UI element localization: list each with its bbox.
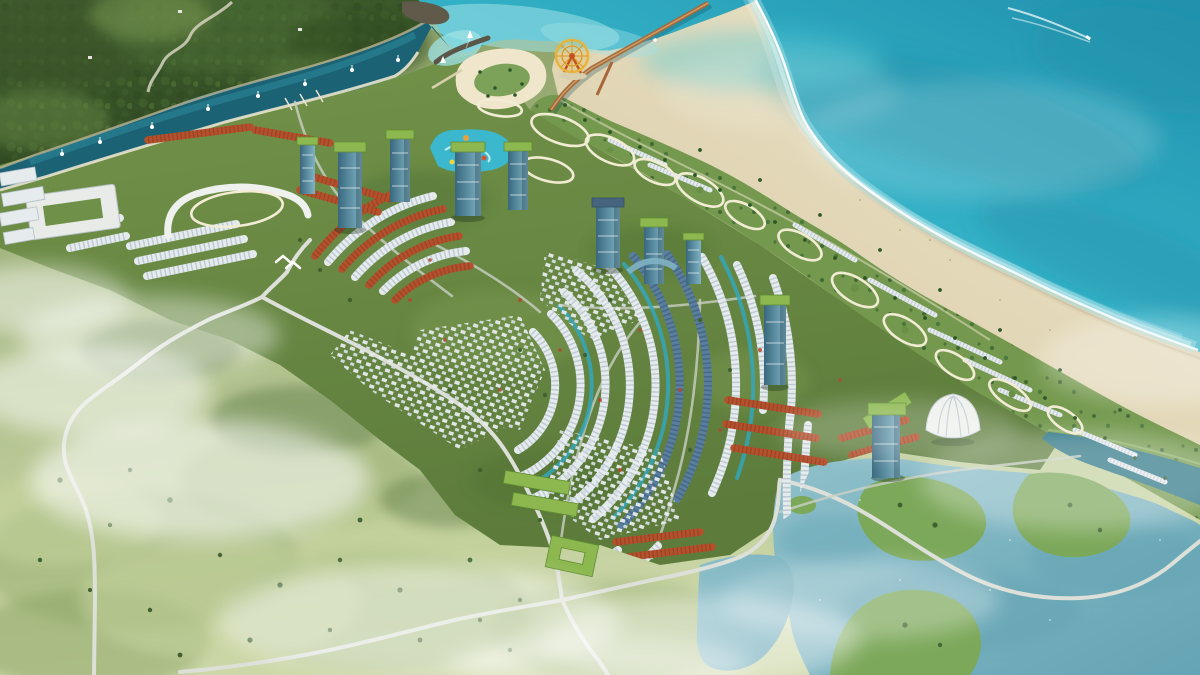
aerial-render <box>0 0 1200 675</box>
masterplan-scene <box>0 0 1200 675</box>
